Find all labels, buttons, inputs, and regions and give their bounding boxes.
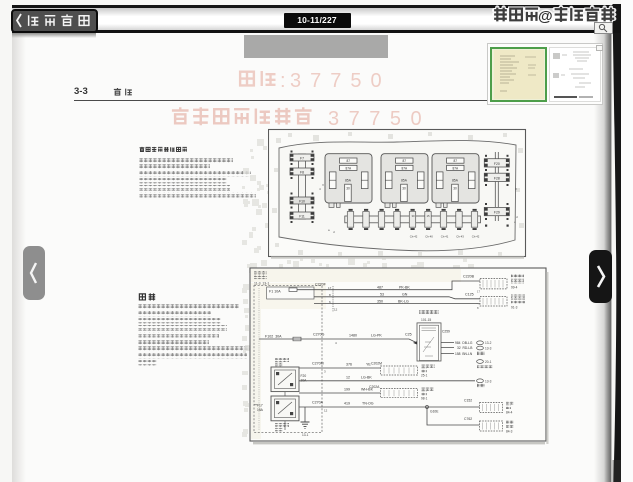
svg-text:15: 15 (426, 214, 430, 218)
svg-text:C762: C762 (464, 417, 472, 421)
svg-text:13-3: 13-3 (485, 379, 492, 383)
svg-text:F8: F8 (300, 171, 304, 175)
svg-text:13-2: 13-2 (485, 341, 492, 345)
svg-text:F1 10A: F1 10A (269, 290, 281, 294)
svg-text:30: 30 (411, 214, 415, 218)
svg-text:158 BN-LN: 158 BN-LN (455, 352, 473, 356)
svg-text:17: 17 (477, 290, 481, 294)
svg-text:@: @ (538, 8, 553, 25)
svg-text:37750: 37750 (290, 70, 391, 92)
svg-text:91-3: 91-3 (511, 306, 518, 310)
svg-text:G10E: G10E (430, 410, 439, 414)
svg-text:V: V (322, 183, 324, 187)
svg-text:12: 12 (334, 308, 338, 312)
svg-text:C152: C152 (464, 399, 472, 403)
svg-text:F11: F11 (299, 215, 305, 219)
svg-text:13-3: 13-3 (485, 346, 492, 350)
svg-text:C125: C125 (465, 293, 474, 297)
svg-text:13-1: 13-1 (302, 433, 309, 437)
svg-text:C270A: C270A (312, 401, 324, 405)
svg-text:Ch-43: Ch-43 (456, 235, 464, 239)
svg-text:376: 376 (346, 363, 352, 367)
svg-text:12: 12 (324, 409, 328, 413)
svg-text:199: 199 (344, 388, 350, 392)
svg-text:25-1: 25-1 (421, 374, 428, 378)
svg-text:17: 17 (328, 286, 332, 290)
svg-text:Ch-42: Ch-42 (472, 235, 480, 239)
svg-text:Ch-40: Ch-40 (425, 235, 433, 239)
svg-text:LG-BK: LG-BK (361, 376, 372, 380)
svg-text:Ch-41: Ch-41 (441, 235, 449, 239)
svg-text:F20: F20 (494, 162, 500, 166)
svg-text::: : (280, 70, 286, 92)
svg-text:F10: F10 (299, 200, 305, 204)
svg-text:C220B: C220B (463, 275, 475, 279)
svg-text:F28: F28 (494, 176, 500, 180)
svg-text:GN: GN (402, 293, 408, 297)
svg-text:F102 30A: F102 30A (265, 335, 282, 339)
svg-text:350: 350 (377, 299, 383, 303)
svg-text:30: 30 (346, 187, 350, 191)
svg-text:C270M: C270M (312, 362, 324, 366)
svg-text:32 RD-LB: 32 RD-LB (457, 346, 473, 350)
svg-text:101-15: 101-15 (421, 318, 431, 322)
svg-text:984 DB-LG: 984 DB-LG (455, 341, 473, 345)
svg-text:C259: C259 (442, 330, 450, 334)
svg-text:15A: 15A (257, 408, 264, 412)
svg-text:487: 487 (377, 286, 383, 290)
svg-text:87: 87 (347, 159, 351, 163)
svg-text:C270G: C270G (313, 333, 325, 337)
svg-text:85A: 85A (345, 179, 352, 183)
svg-text:20-1: 20-1 (485, 360, 492, 364)
svg-text:C202A: C202A (369, 385, 380, 389)
svg-text:Ch-42: Ch-42 (410, 235, 418, 239)
svg-text:F7: F7 (300, 157, 304, 161)
svg-text:1480: 1480 (349, 334, 357, 338)
svg-text:20A: 20A (301, 379, 308, 383)
svg-text:12: 12 (346, 376, 350, 380)
svg-text:BK-LG: BK-LG (398, 299, 409, 303)
svg-text:LG-PK: LG-PK (371, 334, 382, 338)
svg-text:C25: C25 (405, 333, 412, 337)
svg-text:419: 419 (344, 402, 350, 406)
svg-text:F29: F29 (494, 211, 500, 215)
svg-text:C202M: C202M (371, 362, 382, 366)
svg-text:98-1: 98-1 (421, 397, 428, 401)
svg-text:TN-OG: TN-OG (362, 402, 374, 406)
svg-text:F20: F20 (301, 374, 307, 378)
svg-text:99-4: 99-4 (511, 286, 518, 290)
svg-text:11-3 13-1: 11-3 13-1 (254, 282, 269, 286)
svg-text:87A: 87A (345, 166, 352, 170)
svg-text:53: 53 (380, 293, 384, 297)
svg-text:PK-BK: PK-BK (399, 286, 410, 290)
svg-text:84-4: 84-4 (506, 411, 513, 415)
svg-text:C220F: C220F (315, 283, 327, 287)
svg-text:84-3: 84-3 (506, 430, 513, 434)
svg-text:F17: F17 (257, 404, 263, 408)
